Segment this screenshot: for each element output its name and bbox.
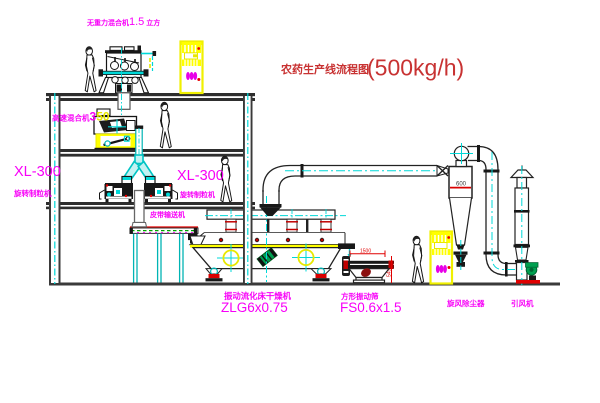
svg-text:1500: 1500 — [360, 249, 371, 255]
svg-text:600: 600 — [456, 182, 467, 188]
svg-text:引风机: 引风机 — [511, 298, 534, 308]
svg-text:XL-300: XL-300 — [14, 164, 61, 180]
svg-text:FS0.6x1.5: FS0.6x1.5 — [340, 300, 402, 315]
svg-text:旋风除尘器: 旋风除尘器 — [446, 298, 485, 308]
svg-text:(500kg/h): (500kg/h) — [367, 55, 464, 81]
svg-text:农药生产线流程图: 农药生产线流程图 — [280, 62, 369, 76]
svg-text:ZLG6x0.75: ZLG6x0.75 — [221, 300, 288, 315]
svg-text:XL-300: XL-300 — [177, 168, 224, 184]
svg-text:旋转制粒机: 旋转制粒机 — [13, 188, 52, 198]
svg-text:旋转制粒机: 旋转制粒机 — [179, 190, 215, 199]
svg-text:无重力混合机1.5 立方: 无重力混合机1.5 立方 — [86, 16, 160, 28]
svg-text:高速混合机350: 高速混合机350 — [52, 110, 110, 124]
svg-text:皮带输送机: 皮带输送机 — [149, 210, 185, 219]
